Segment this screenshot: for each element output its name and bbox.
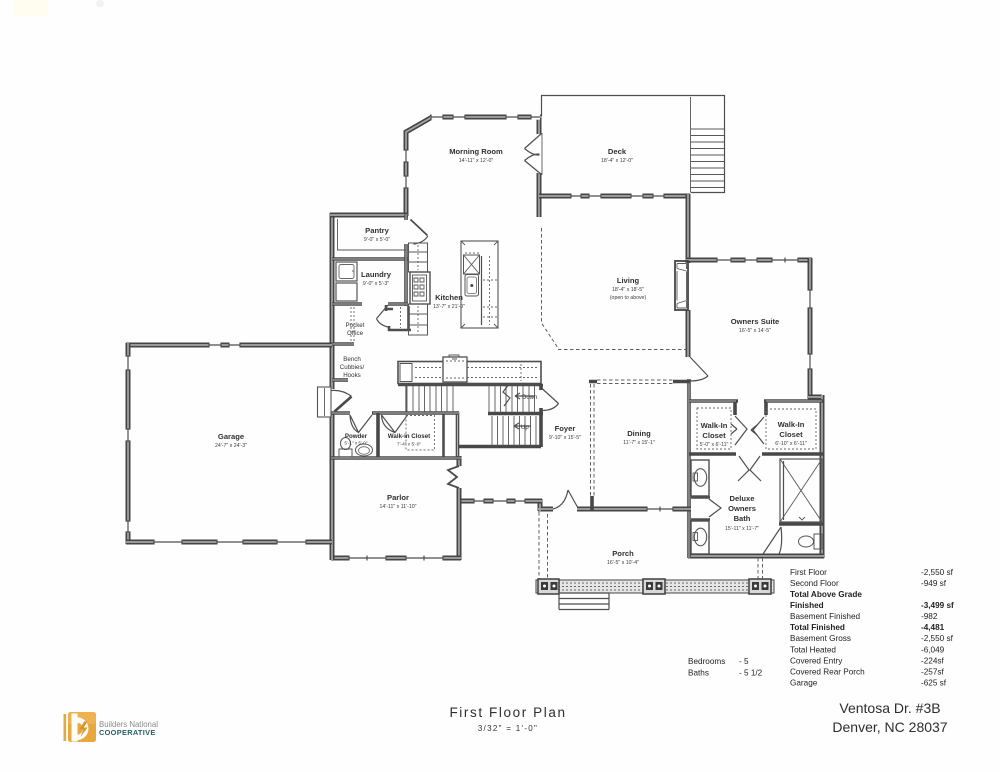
svg-text:Deluxe: Deluxe (730, 494, 755, 503)
svg-text:5'-0" x 6'-11": 5'-0" x 6'-11" (700, 442, 729, 448)
svg-text:- 5 1/2: - 5 1/2 (739, 669, 763, 678)
svg-text:Denver, NC 28037: Denver, NC 28037 (832, 719, 947, 735)
svg-text:Hooks: Hooks (343, 372, 361, 379)
svg-text:-4,481: -4,481 (921, 623, 945, 632)
svg-text:9'-0" x 5'-3": 9'-0" x 5'-3" (363, 281, 389, 287)
svg-text:-2,550 sf: -2,550 sf (921, 634, 954, 643)
svg-text:-2,550 sf: -2,550 sf (921, 568, 954, 577)
svg-text:Total Above Grade: Total Above Grade (790, 590, 862, 599)
svg-text:Baths: Baths (688, 669, 709, 678)
svg-text:-982: -982 (921, 612, 938, 621)
svg-text:Office: Office (347, 330, 364, 337)
svg-text:14'-11" x 12'-0": 14'-11" x 12'-0" (459, 158, 494, 164)
svg-text:14'-11" x 11'-10": 14'-11" x 11'-10" (380, 504, 417, 510)
svg-text:Parlor: Parlor (387, 493, 409, 502)
svg-text:Walk-In: Walk-In (778, 420, 805, 429)
svg-text:Walk-in Closet: Walk-in Closet (388, 433, 430, 440)
svg-text:Garage: Garage (790, 679, 818, 688)
svg-text:- 5: - 5 (739, 657, 749, 666)
svg-text:9'-0" x 5'-0": 9'-0" x 5'-0" (364, 237, 390, 243)
svg-text:Second Floor: Second Floor (790, 579, 839, 588)
svg-text:Basement Gross: Basement Gross (790, 634, 851, 643)
svg-text:Morning Room: Morning Room (449, 147, 503, 156)
svg-text:6'-10" x 6'-11": 6'-10" x 6'-11" (775, 441, 807, 447)
svg-text:Dining: Dining (627, 429, 651, 438)
svg-text:Finished: Finished (790, 601, 824, 610)
svg-text:Pantry: Pantry (365, 226, 389, 235)
svg-text:Total Heated: Total Heated (790, 646, 836, 655)
svg-text:-3,499 sf: -3,499 sf (921, 601, 954, 610)
svg-text:(open to above): (open to above) (610, 295, 647, 301)
svg-text:Down: Down (522, 395, 537, 401)
svg-text:Basement Finished: Basement Finished (790, 612, 861, 621)
svg-text:18'-4" x 18'-5": 18'-4" x 18'-5" (612, 287, 644, 293)
svg-text:Garage: Garage (218, 432, 244, 441)
svg-text:COOPERATIVE: COOPERATIVE (99, 728, 156, 737)
svg-text:15'-11" x 11'-7": 15'-11" x 11'-7" (725, 526, 759, 532)
svg-text:24'-7" x 24'-3": 24'-7" x 24'-3" (215, 443, 247, 449)
svg-text:Deck: Deck (608, 147, 627, 156)
svg-text:Cubbies/: Cubbies/ (340, 364, 365, 371)
svg-text:16'-5" x 14'-5": 16'-5" x 14'-5" (739, 328, 771, 334)
svg-text:9'-10" x 15'-5": 9'-10" x 15'-5" (549, 435, 581, 441)
svg-text:Up: Up (521, 425, 529, 431)
svg-text:5'-1" x 5'-0": 5'-1" x 5'-0" (344, 441, 368, 446)
svg-text:Ventosa Dr. #3B: Ventosa Dr. #3B (839, 700, 940, 716)
svg-text:11'-7" x 15'-1": 11'-7" x 15'-1" (623, 440, 655, 446)
svg-text:Closet: Closet (779, 430, 803, 439)
svg-text:Powder: Powder (345, 433, 368, 440)
svg-text:First Floor: First Floor (790, 568, 827, 577)
svg-text:Foyer: Foyer (555, 424, 576, 433)
svg-text:Bench: Bench (343, 356, 361, 363)
svg-text:Covered Entry: Covered Entry (790, 657, 843, 666)
svg-text:First Floor Plan: First Floor Plan (449, 705, 566, 720)
svg-text:Walk-In: Walk-In (701, 421, 728, 430)
svg-text:Covered Rear Porch: Covered Rear Porch (790, 668, 865, 677)
svg-text:16'-5" x 10'-4": 16'-5" x 10'-4" (607, 560, 639, 566)
svg-text:3/32" = 1'-0": 3/32" = 1'-0" (478, 724, 538, 733)
svg-text:Closet: Closet (702, 431, 726, 440)
svg-text:-257sf: -257sf (921, 668, 944, 677)
svg-text:Owners Suite: Owners Suite (731, 317, 780, 326)
svg-text:Total Finished: Total Finished (790, 623, 845, 632)
svg-text:7'-4" x 5'-0": 7'-4" x 5'-0" (397, 442, 421, 448)
svg-text:Porch: Porch (612, 549, 634, 558)
svg-text:Kitchen: Kitchen (435, 293, 463, 302)
svg-text:Owners: Owners (728, 504, 756, 513)
svg-text:Living: Living (617, 276, 640, 285)
svg-text:Bath: Bath (734, 514, 751, 523)
svg-text:-6,049: -6,049 (921, 646, 945, 655)
svg-text:-949 sf: -949 sf (921, 579, 947, 588)
svg-text:Pocket: Pocket (346, 322, 365, 329)
svg-text:Laundry: Laundry (361, 270, 392, 279)
svg-text:18'-4" x 12'-0": 18'-4" x 12'-0" (601, 158, 633, 164)
svg-text:13'-7" x 21'-0": 13'-7" x 21'-0" (433, 304, 465, 310)
svg-text:-224sf: -224sf (921, 657, 944, 666)
svg-text:-625 sf: -625 sf (921, 679, 947, 688)
svg-text:Bedrooms: Bedrooms (688, 657, 725, 666)
